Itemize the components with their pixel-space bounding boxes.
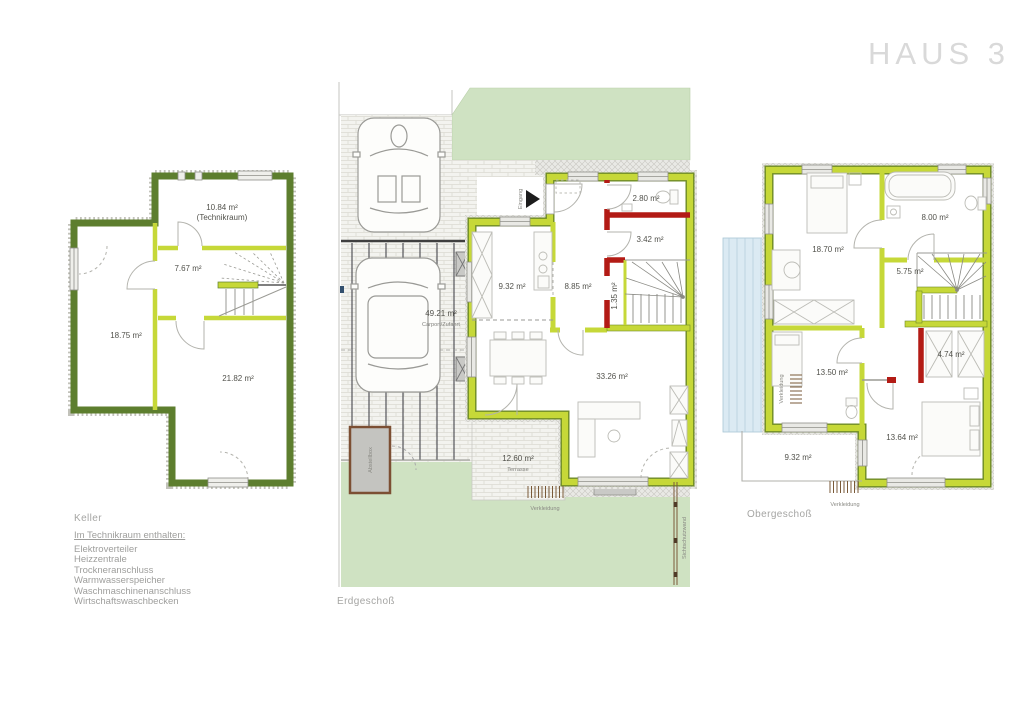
room-label-carport: 49.21 m² bbox=[425, 309, 457, 318]
og-verkleidung-bottom-label: Verkleidung bbox=[830, 502, 859, 508]
room-label-bottom: 21.82 m² bbox=[222, 374, 254, 383]
room-label-technikraum-name: (Technikraum) bbox=[197, 213, 248, 222]
obergeschoss-plan-svg: Verkleidung Verkleidung 18.70 m² 8.00 m²… bbox=[710, 160, 1010, 525]
legend-item: Warmwasserspeicher bbox=[74, 576, 191, 587]
eg-lawn-top bbox=[452, 88, 690, 160]
bed-double bbox=[922, 402, 980, 456]
room-label-schrank: 4.74 m² bbox=[937, 350, 964, 359]
room-label-diele: 8.85 m² bbox=[564, 282, 591, 291]
wardrobe bbox=[774, 300, 854, 324]
meter-marker bbox=[340, 286, 344, 293]
keller-plan-svg: 10.84 m² (Technikraum) 7.67 m² 18.75 m² … bbox=[60, 158, 312, 506]
obergeschoss-caption: Obergeschoß bbox=[747, 509, 812, 520]
room-label-left: 18.75 m² bbox=[110, 331, 142, 340]
bed-single-2 bbox=[772, 332, 802, 386]
room-label-technikraum: 10.84 m² bbox=[206, 203, 238, 212]
kitchen-unit bbox=[472, 232, 492, 318]
desk bbox=[772, 250, 800, 290]
floor-plan-sheet: HAUS 3 10 bbox=[0, 0, 1024, 724]
dining-table bbox=[490, 340, 546, 376]
abstellbox-label: Abstellbox bbox=[368, 447, 374, 473]
sofa bbox=[578, 402, 640, 419]
erdgeschoss-caption: Erdgeschoß bbox=[337, 596, 395, 607]
room-label-schacht: 1.35 m² bbox=[610, 282, 619, 309]
room-label-flur: 7.67 m² bbox=[174, 264, 201, 273]
verkleidung-label: Verkleidung bbox=[530, 506, 559, 512]
og-verkleidung-left-label: Verkleidung bbox=[779, 374, 785, 403]
bathtub bbox=[885, 172, 955, 200]
room-label-zimmer2: 13.50 m² bbox=[816, 368, 848, 377]
legend-item: Heizzentrale bbox=[74, 555, 191, 566]
legend-heading: Im Technikraum enthalten: bbox=[74, 531, 191, 542]
room-label-balkon: 9.32 m² bbox=[784, 453, 811, 462]
eg-eingang: Eingang bbox=[518, 189, 540, 210]
legend-item: Wirtschaftswaschbecken bbox=[74, 597, 191, 608]
room-label-zimmer1: 18.70 m² bbox=[812, 245, 844, 254]
bed-single bbox=[807, 173, 847, 233]
car-icon-top bbox=[353, 118, 445, 232]
room-label-zimmer3: 13.64 m² bbox=[886, 433, 918, 442]
sheet-title: HAUS 3 bbox=[868, 36, 1010, 72]
og-glazing bbox=[723, 238, 765, 432]
room-label-abstell: 3.42 m² bbox=[636, 235, 663, 244]
entry-arrow-icon bbox=[526, 190, 540, 208]
keller-caption: Keller bbox=[74, 513, 102, 524]
sichtschutzwand-label: Sichtschutzwand bbox=[682, 517, 688, 559]
entry-door bbox=[546, 184, 554, 214]
eingang-label: Eingang bbox=[518, 189, 524, 210]
tv-unit bbox=[672, 420, 687, 446]
room-label-terrasse: 12.60 m² bbox=[502, 454, 534, 463]
room-label-terrasse-name: Terrasse bbox=[507, 467, 528, 473]
room-label-bad: 8.00 m² bbox=[921, 213, 948, 222]
technikraum-legend: Im Technikraum enthalten: Elektroverteil… bbox=[74, 531, 191, 608]
room-label-wohnen: 33.26 m² bbox=[596, 372, 628, 381]
room-label-kueche: 9.32 m² bbox=[498, 282, 525, 291]
room-label-carport-name: Carport/Zufahrt bbox=[422, 322, 460, 328]
erdgeschoss-plan-svg: Abstellbox bbox=[336, 80, 694, 600]
room-label-wc: 2.80 m² bbox=[632, 194, 659, 203]
room-label-flur: 5.75 m² bbox=[896, 267, 923, 276]
